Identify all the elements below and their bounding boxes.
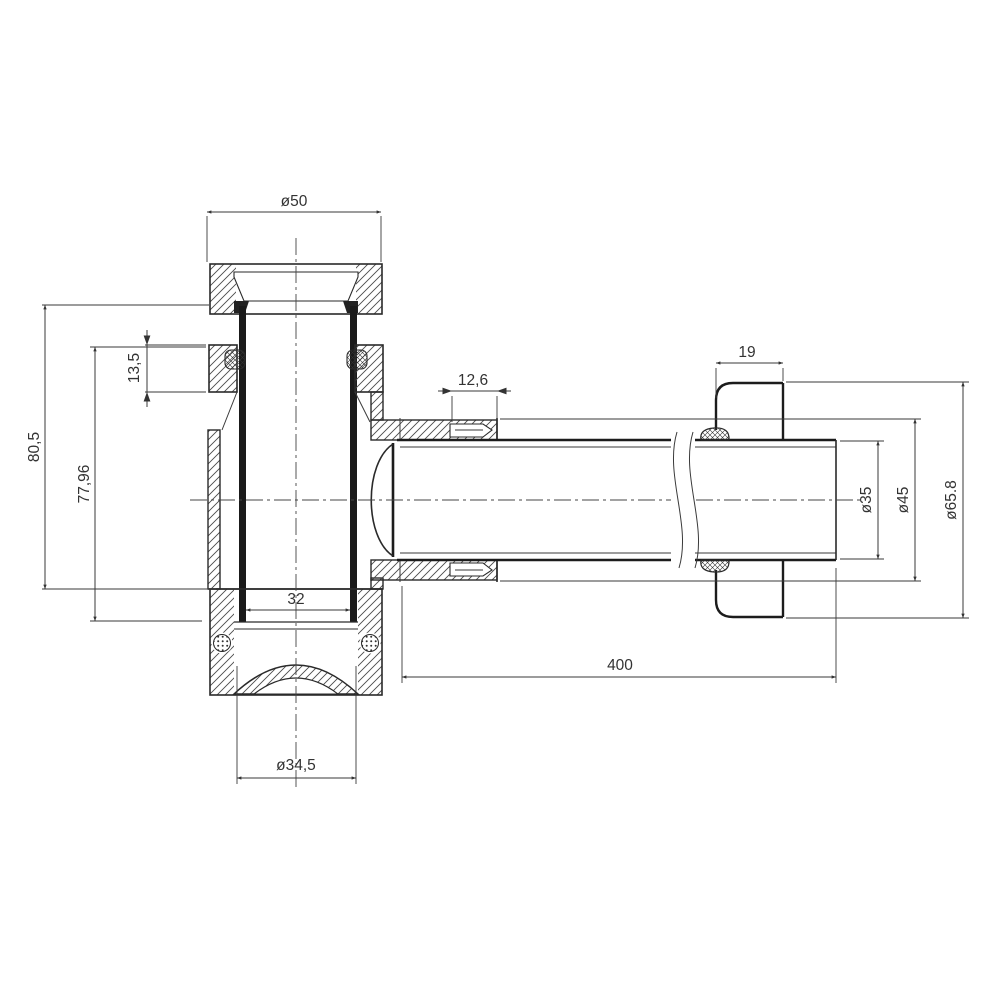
- dimension-flange-depth: 19: [716, 344, 783, 398]
- dim-label-inner-bore: 32: [287, 591, 304, 608]
- flange-seal-top: [701, 428, 729, 440]
- dim-label-bottom-cap-diameter: ø34,5: [276, 757, 316, 774]
- dim-label-flange-diameter: ø65.8: [943, 480, 960, 520]
- dim-label-pipe-diameter: ø35: [858, 487, 875, 514]
- pipe-break-symbol: [671, 428, 699, 572]
- dimension-inner-bore: 32: [246, 591, 350, 610]
- dim-label-nut-diameter: ø45: [895, 487, 912, 514]
- dimension-body-height-inner: 77,96: [76, 347, 206, 621]
- dimension-top-diameter: ø50: [207, 193, 381, 262]
- dim-label-pipe-length: 400: [607, 657, 633, 674]
- wall-flange: [701, 383, 783, 617]
- dimension-nut-section-width: 12,6: [438, 372, 511, 422]
- dim-label-flange-depth: 19: [738, 344, 755, 361]
- oring-seal-right: [347, 350, 367, 369]
- dim-label-top-diameter: ø50: [281, 193, 308, 210]
- oring-seal-left: [225, 350, 245, 369]
- dimension-upper-seal-height: 13,5: [126, 330, 206, 407]
- technical-drawing: ø50 13,5 80,5 77,96 32 ø34,5 12,6: [0, 0, 1000, 1000]
- flange-seal-bottom: [701, 560, 729, 572]
- drawing-canvas: ø50 13,5 80,5 77,96 32 ø34,5 12,6: [0, 0, 1000, 1000]
- dimension-pipe-length: 400: [402, 568, 836, 683]
- dim-label-body-height-outer: 80,5: [26, 432, 43, 462]
- dim-label-body-height-inner: 77,96: [76, 465, 93, 504]
- dim-label-nut-section-width: 12,6: [458, 372, 488, 389]
- dimension-body-height-outer: 80,5: [26, 305, 216, 589]
- vertical-body: [208, 264, 383, 695]
- dim-label-upper-seal-height: 13,5: [126, 353, 143, 383]
